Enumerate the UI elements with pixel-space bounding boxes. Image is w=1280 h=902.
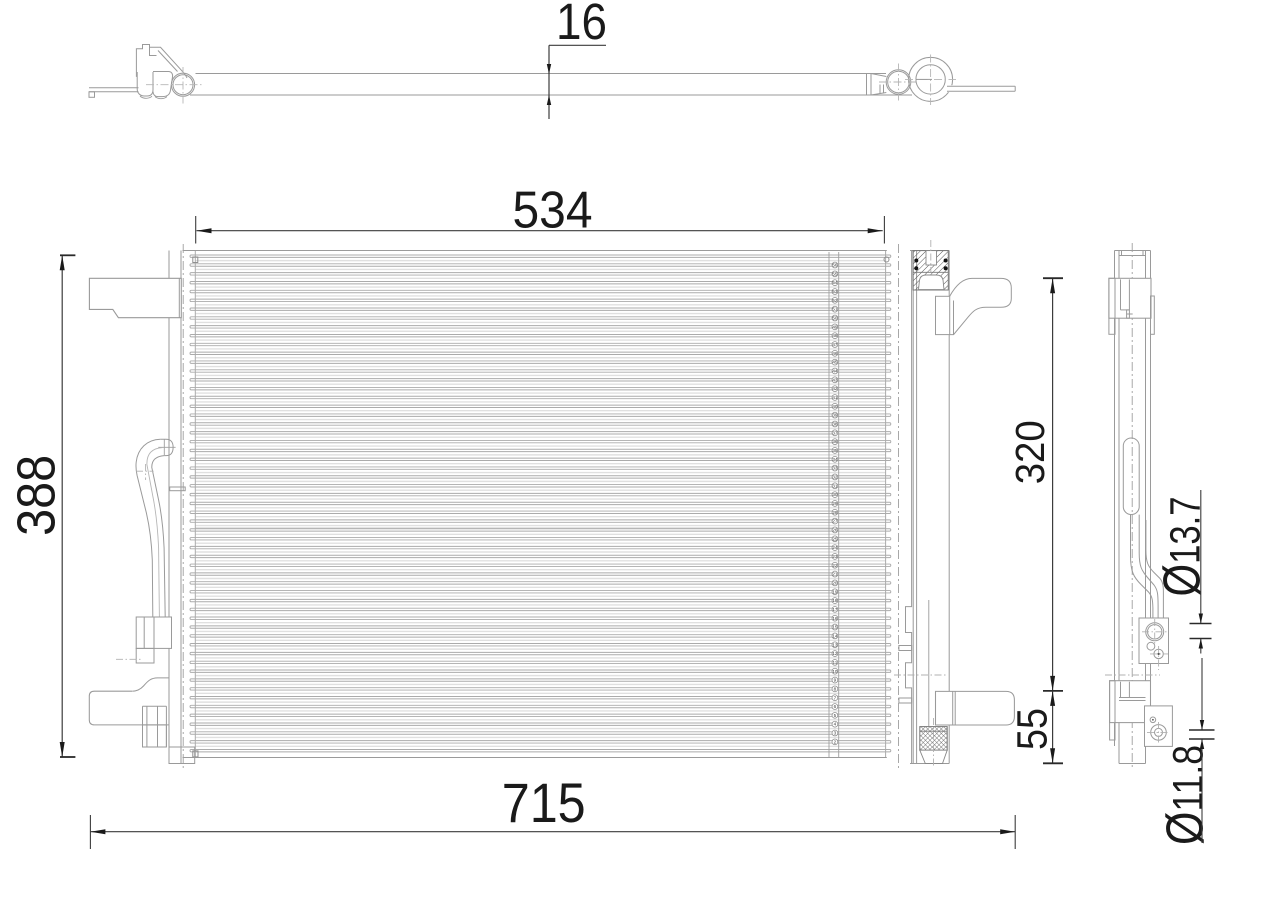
svg-text:8: 8: [834, 686, 837, 691]
svg-text:5: 5: [834, 713, 837, 718]
svg-text:23: 23: [832, 554, 838, 559]
svg-text:28: 28: [832, 510, 838, 515]
svg-text:56: 56: [832, 263, 838, 268]
svg-text:34: 34: [832, 457, 838, 462]
svg-text:6: 6: [834, 704, 837, 709]
svg-text:22: 22: [832, 563, 838, 568]
svg-text:33: 33: [832, 466, 838, 471]
svg-text:49: 49: [832, 324, 838, 329]
svg-text:40: 40: [832, 404, 838, 409]
svg-text:55: 55: [1008, 708, 1056, 750]
svg-text:41: 41: [832, 395, 838, 400]
svg-text:Ø11.8: Ø11.8: [1157, 745, 1215, 845]
svg-text:42: 42: [832, 386, 838, 391]
svg-text:30: 30: [832, 492, 838, 497]
svg-text:2: 2: [834, 739, 837, 744]
svg-text:29: 29: [832, 501, 838, 506]
svg-text:48: 48: [832, 333, 838, 338]
svg-text:17: 17: [832, 607, 838, 612]
svg-text:4: 4: [834, 722, 837, 727]
svg-text:12: 12: [832, 651, 838, 656]
svg-text:715: 715: [502, 771, 586, 834]
svg-text:51: 51: [832, 307, 838, 312]
svg-text:13: 13: [832, 642, 838, 647]
svg-text:38: 38: [832, 422, 838, 427]
svg-text:32: 32: [832, 475, 838, 480]
svg-text:54: 54: [832, 280, 838, 285]
svg-text:47: 47: [832, 342, 838, 347]
svg-text:20: 20: [832, 580, 838, 585]
svg-text:10: 10: [832, 669, 838, 674]
svg-text:46: 46: [832, 351, 838, 356]
svg-text:16: 16: [556, 0, 607, 50]
svg-text:Ø13.7: Ø13.7: [1154, 497, 1212, 597]
svg-text:27: 27: [832, 519, 838, 524]
svg-text:9: 9: [834, 678, 837, 683]
svg-text:388: 388: [6, 455, 66, 536]
svg-text:44: 44: [832, 369, 838, 374]
svg-text:18: 18: [832, 598, 838, 603]
svg-text:320: 320: [1007, 420, 1053, 484]
svg-text:36: 36: [832, 439, 838, 444]
svg-text:3: 3: [834, 731, 837, 736]
svg-text:16: 16: [832, 616, 838, 621]
svg-text:43: 43: [832, 377, 838, 382]
svg-text:31: 31: [832, 483, 838, 488]
svg-text:50: 50: [832, 316, 838, 321]
svg-text:14: 14: [832, 633, 838, 638]
svg-text:7: 7: [834, 695, 837, 700]
svg-text:45: 45: [832, 360, 838, 365]
svg-text:26: 26: [832, 527, 838, 532]
svg-text:53: 53: [832, 289, 838, 294]
svg-text:11: 11: [833, 660, 838, 665]
svg-text:39: 39: [832, 413, 838, 418]
svg-text:21: 21: [832, 572, 838, 577]
svg-text:55: 55: [832, 271, 838, 276]
svg-text:19: 19: [832, 589, 838, 594]
svg-text:25: 25: [832, 536, 838, 541]
svg-text:52: 52: [832, 298, 838, 303]
svg-text:35: 35: [832, 448, 838, 453]
svg-text:37: 37: [832, 430, 838, 435]
svg-text:24: 24: [832, 545, 838, 550]
svg-text:15: 15: [832, 625, 838, 630]
